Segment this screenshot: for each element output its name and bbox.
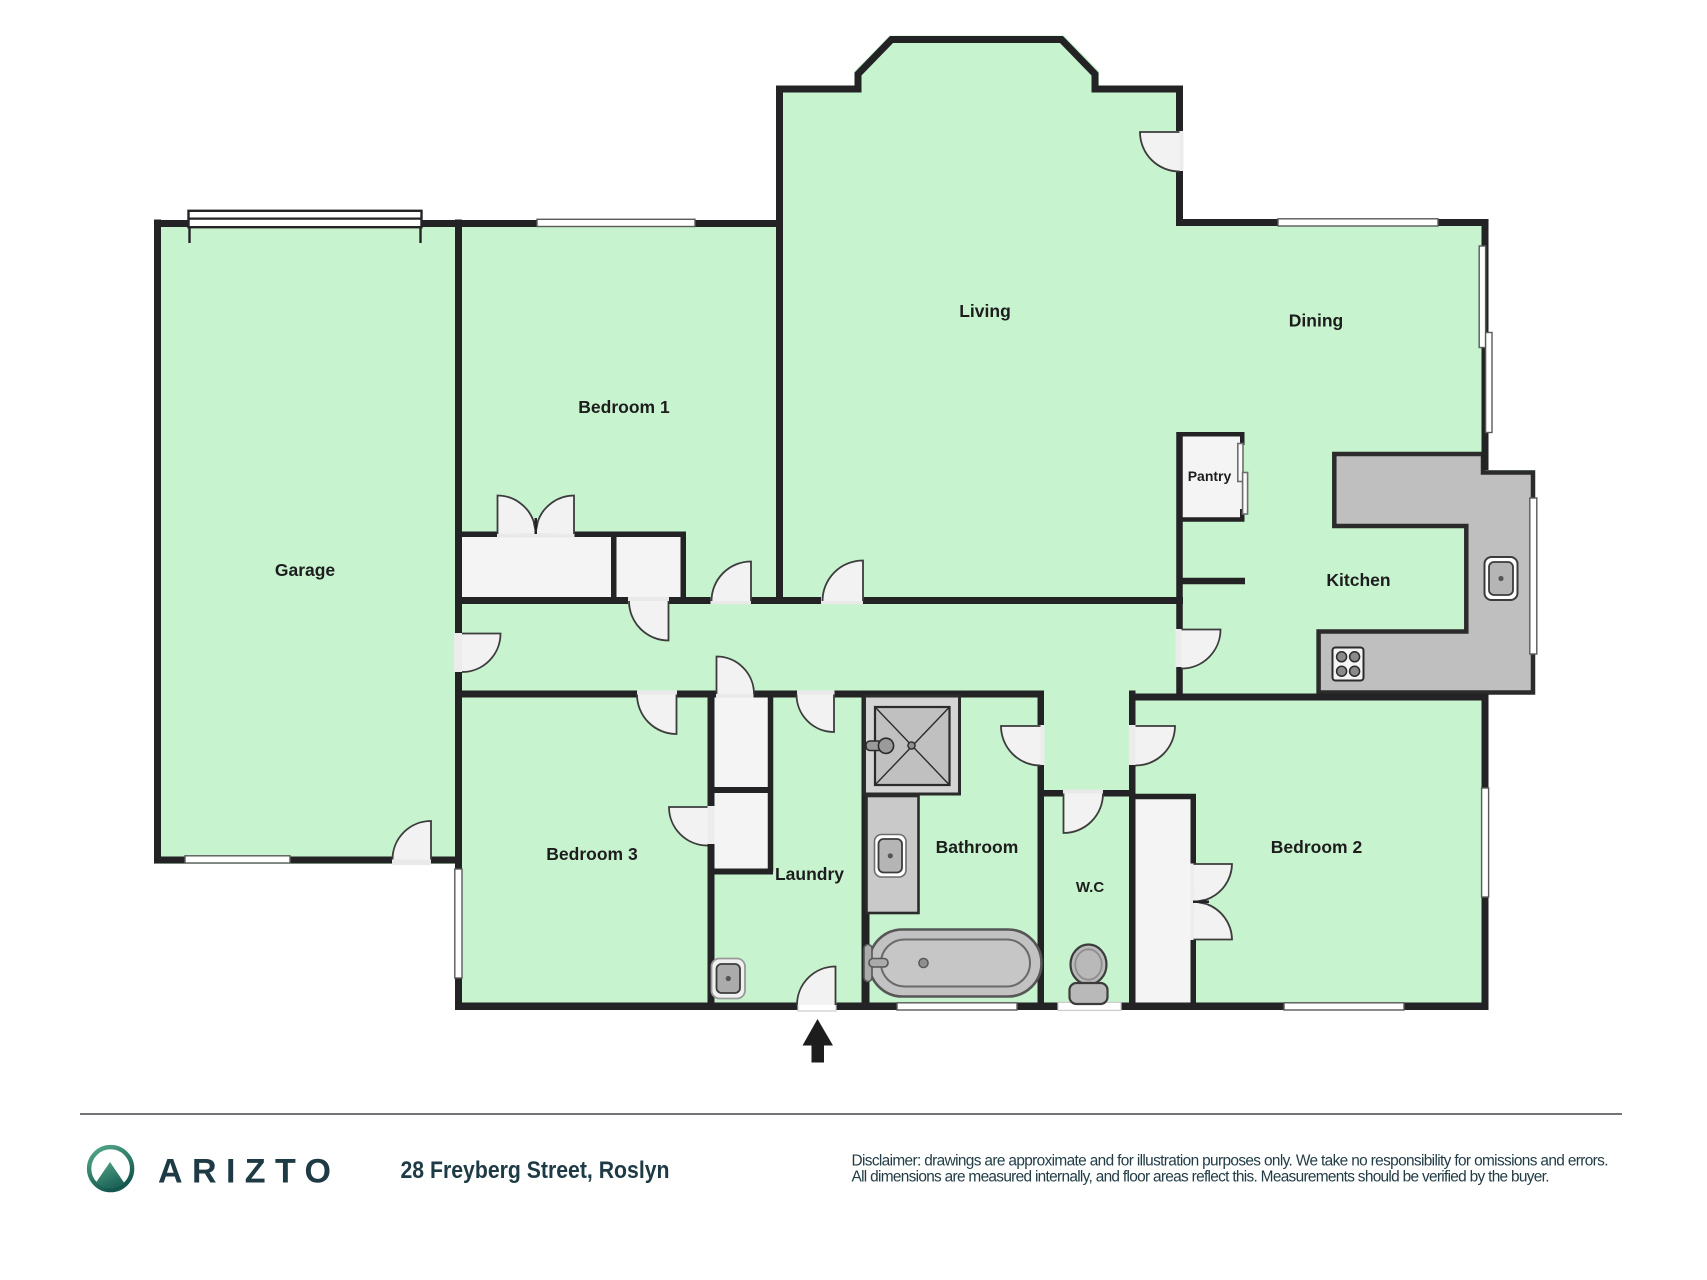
svg-text:Pantry: Pantry [1188,468,1232,484]
svg-text:Bedroom 2: Bedroom 2 [1271,837,1363,857]
svg-text:Garage: Garage [275,560,336,580]
svg-text:Dining: Dining [1289,311,1343,331]
svg-text:Bedroom 3: Bedroom 3 [546,844,638,864]
svg-text:Bathroom: Bathroom [936,837,1019,857]
svg-text:Bedroom 1: Bedroom 1 [578,397,670,417]
svg-text:Living: Living [959,301,1011,321]
svg-text:Laundry: Laundry [775,864,844,884]
svg-text:W.C: W.C [1076,879,1104,896]
svg-text:Disclaimer: drawings are appro: Disclaimer: drawings are approximate and… [852,1153,1609,1170]
svg-text:ARIZTO: ARIZTO [158,1153,342,1191]
svg-text:28 Freyberg Street, Roslyn: 28 Freyberg Street, Roslyn [401,1157,670,1184]
svg-text:All dimensions are measured in: All dimensions are measured internally, … [852,1168,1550,1185]
svg-text:Kitchen: Kitchen [1326,570,1390,590]
